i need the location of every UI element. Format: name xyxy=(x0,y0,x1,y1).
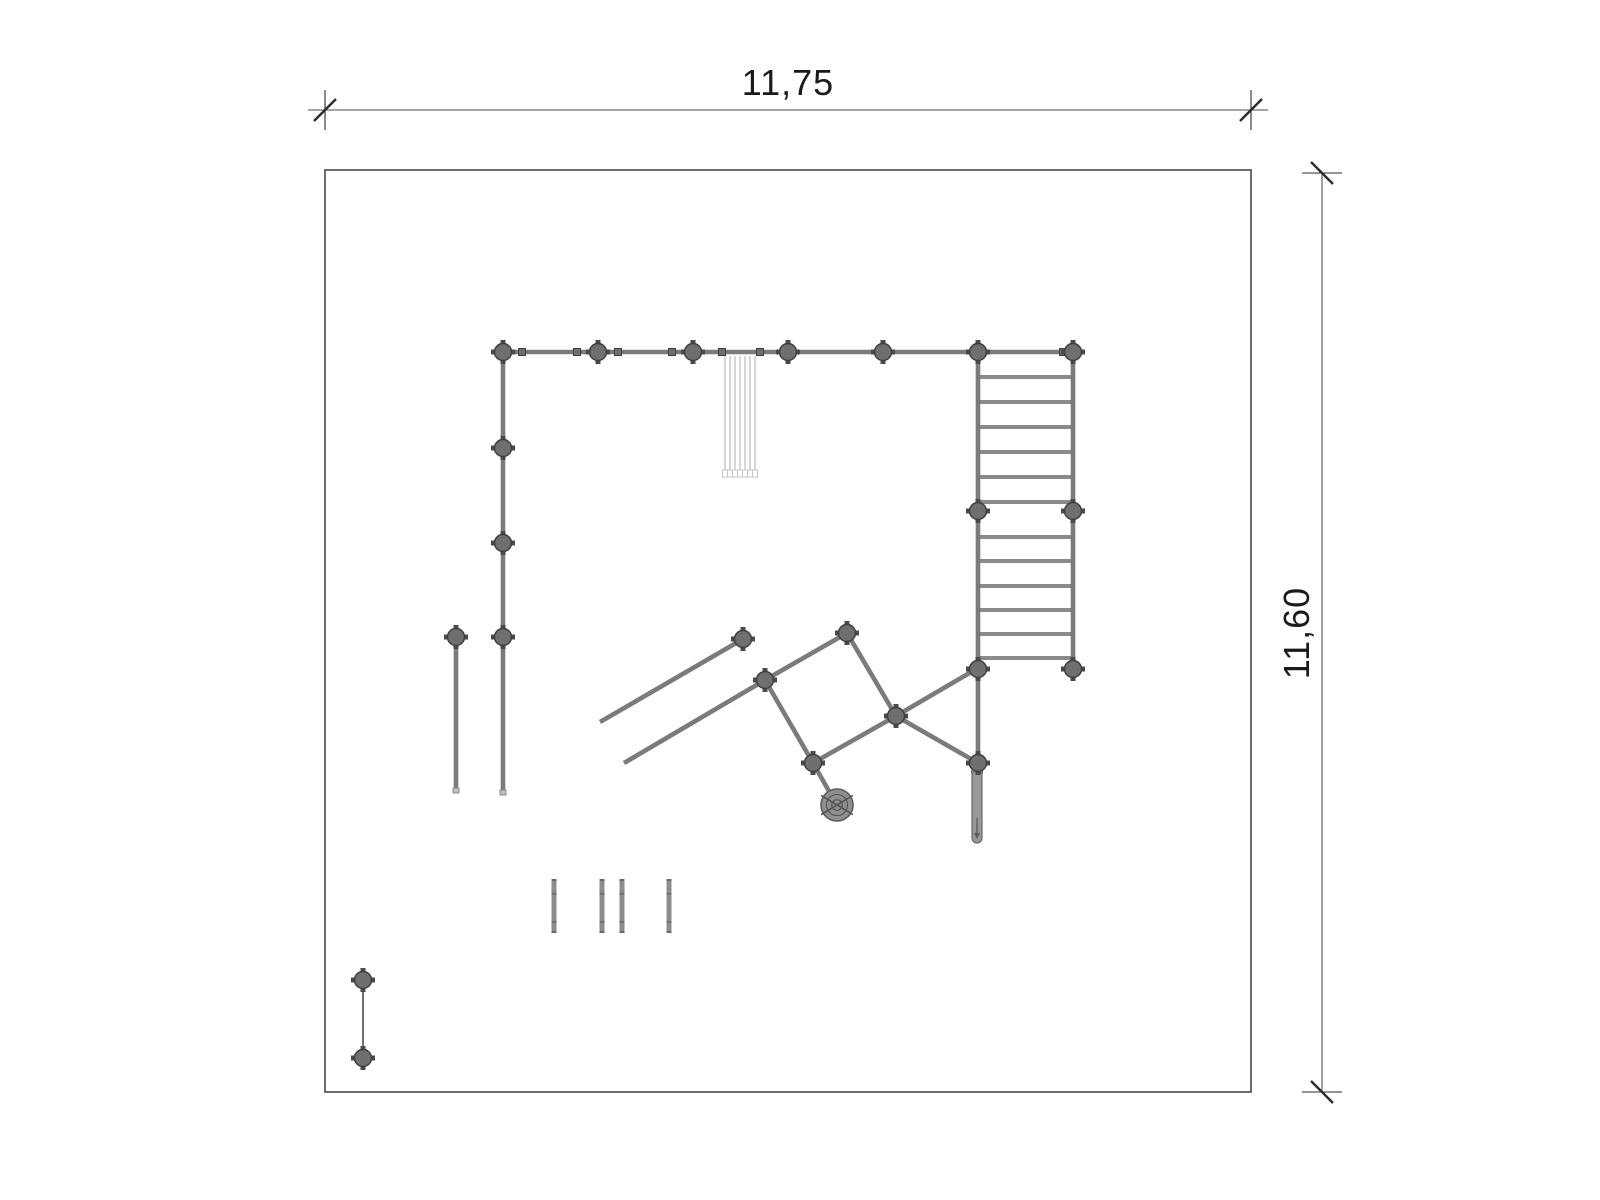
beam-clamp xyxy=(719,349,726,356)
node-joint xyxy=(970,344,987,361)
node-joint xyxy=(970,661,987,678)
node-joint xyxy=(875,344,892,361)
post-end-cap xyxy=(453,788,459,793)
plan-drawing-canvas xyxy=(0,0,1600,1200)
ground-bar-tick xyxy=(552,921,557,923)
ground-bar-cap xyxy=(667,931,672,933)
ground-bar-cap xyxy=(600,879,605,881)
ground-bar-tick xyxy=(620,893,625,895)
node-joint xyxy=(495,440,512,457)
node-joint xyxy=(970,755,987,772)
node-joint xyxy=(495,629,512,646)
plot-boundary xyxy=(325,170,1251,1092)
frame-beam xyxy=(896,668,978,716)
ground-bar-tick xyxy=(600,893,605,895)
ground-bar-tick xyxy=(600,921,605,923)
frame-beam xyxy=(847,633,896,716)
frame-beam xyxy=(624,680,765,763)
node-joint xyxy=(590,344,607,361)
node-joint xyxy=(495,535,512,552)
ground-bar-cap xyxy=(620,879,625,881)
hatch-foot xyxy=(733,470,738,477)
node-joint xyxy=(780,344,797,361)
frame-beam xyxy=(765,680,813,763)
ground-bar-cap xyxy=(620,931,625,933)
ground-bar-cap xyxy=(552,931,557,933)
node-joint xyxy=(1065,661,1082,678)
beam-clamp xyxy=(757,349,764,356)
node-joint xyxy=(1065,503,1082,520)
beam-clamp xyxy=(615,349,622,356)
ground-bar-tick xyxy=(667,893,672,895)
frame-beam xyxy=(600,639,743,722)
ground-bar-tick xyxy=(667,921,672,923)
plan-drawing-page: 11,75 11,60 xyxy=(0,0,1600,1200)
node-joint xyxy=(757,672,774,689)
frame-beam xyxy=(896,716,978,763)
node-joint xyxy=(839,625,856,642)
hatch-foot xyxy=(728,470,733,477)
ground-bar-cap xyxy=(667,879,672,881)
frame-beam xyxy=(765,633,847,680)
node-joint xyxy=(685,344,702,361)
node-joint xyxy=(970,503,987,520)
node-joint xyxy=(1065,344,1082,361)
ground-bar-cap xyxy=(600,931,605,933)
ground-bar-cap xyxy=(552,879,557,881)
dimension-label-width: 11,75 xyxy=(742,62,834,104)
hatch-foot xyxy=(753,470,758,477)
node-joint xyxy=(448,629,465,646)
node-joint xyxy=(495,344,512,361)
hatch-foot xyxy=(723,470,728,477)
hatch-foot xyxy=(743,470,748,477)
node-joint xyxy=(805,755,822,772)
node-joint xyxy=(735,631,752,648)
dimension-label-height: 11,60 xyxy=(1276,587,1318,679)
node-joint xyxy=(888,708,905,725)
post-end-cap xyxy=(500,790,506,795)
beam-clamp xyxy=(574,349,581,356)
node-joint xyxy=(355,972,372,989)
hatch-foot xyxy=(738,470,743,477)
beam-clamp xyxy=(519,349,526,356)
beam-clamp xyxy=(669,349,676,356)
ground-bar-tick xyxy=(552,893,557,895)
ground-bar-tick xyxy=(620,921,625,923)
node-joint xyxy=(355,1050,372,1067)
frame-beam xyxy=(813,716,896,763)
hatch-foot xyxy=(748,470,753,477)
